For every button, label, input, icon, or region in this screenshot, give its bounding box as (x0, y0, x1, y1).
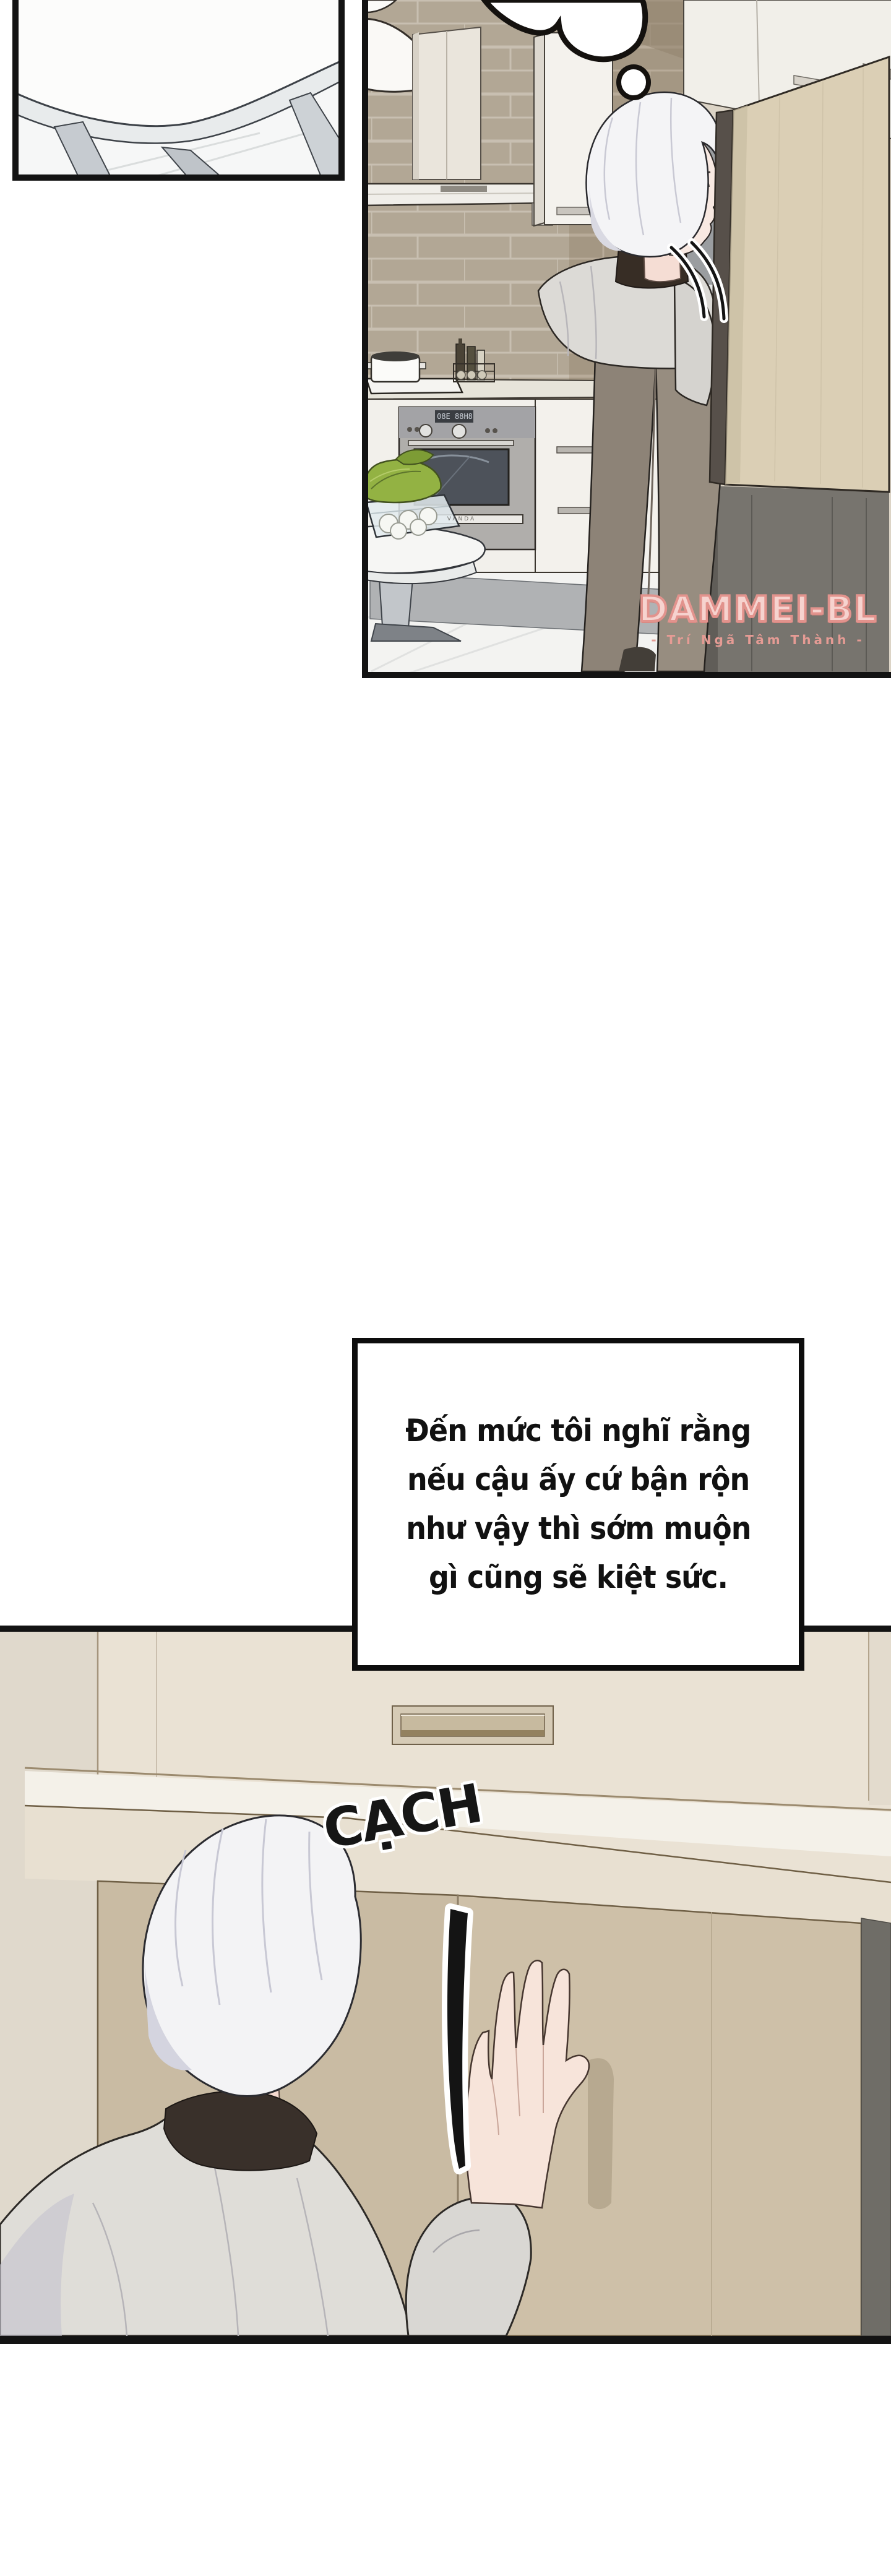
bottom-panel-bottom-border (0, 2336, 891, 2344)
watermark-title: DAMMEI-BL (637, 589, 879, 630)
shoe (619, 647, 656, 671)
panel-table-closeup (12, 0, 345, 178)
oven-knob (452, 424, 466, 438)
oven-brand-label: VANDA (433, 516, 490, 522)
tall-cabinet (413, 27, 481, 179)
oven-knob (420, 424, 432, 437)
dark-side-strip (861, 1918, 891, 2336)
oven-display-text: 08E 88H8 (436, 410, 474, 423)
sfx-stroke (447, 1909, 468, 2169)
caption-line: Đến mức tôi nghĩ rằng (405, 1406, 751, 1455)
panel-cabinet-scene (0, 1632, 891, 2336)
fridge-door (710, 57, 889, 492)
caption-box: Đến mức tôi nghĩ rằng nếu cậu ấy cứ bận … (352, 1338, 804, 1671)
cooking-pot (365, 351, 426, 382)
thought-dot (619, 67, 648, 98)
caption-line: gì cũng sẽ kiệt sức. (429, 1553, 728, 1602)
oven-handle (408, 441, 514, 446)
comic-artwork (0, 0, 891, 2576)
caption-line: như vậy thì sớm muộn (406, 1504, 751, 1553)
caption-line: nếu cậu ấy cứ bận rộn (407, 1455, 749, 1504)
drawer-handle (557, 447, 594, 453)
hand-shadow (588, 2058, 614, 2209)
watermark-subtitle: - Trí Ngã Tâm Thành - (637, 632, 879, 647)
panel-kitchen (362, 0, 891, 673)
recessed-handle (392, 1706, 553, 1744)
comic-page: DAMMEI-BL - Trí Ngã Tâm Thành - 08E 88H8… (0, 0, 891, 2576)
